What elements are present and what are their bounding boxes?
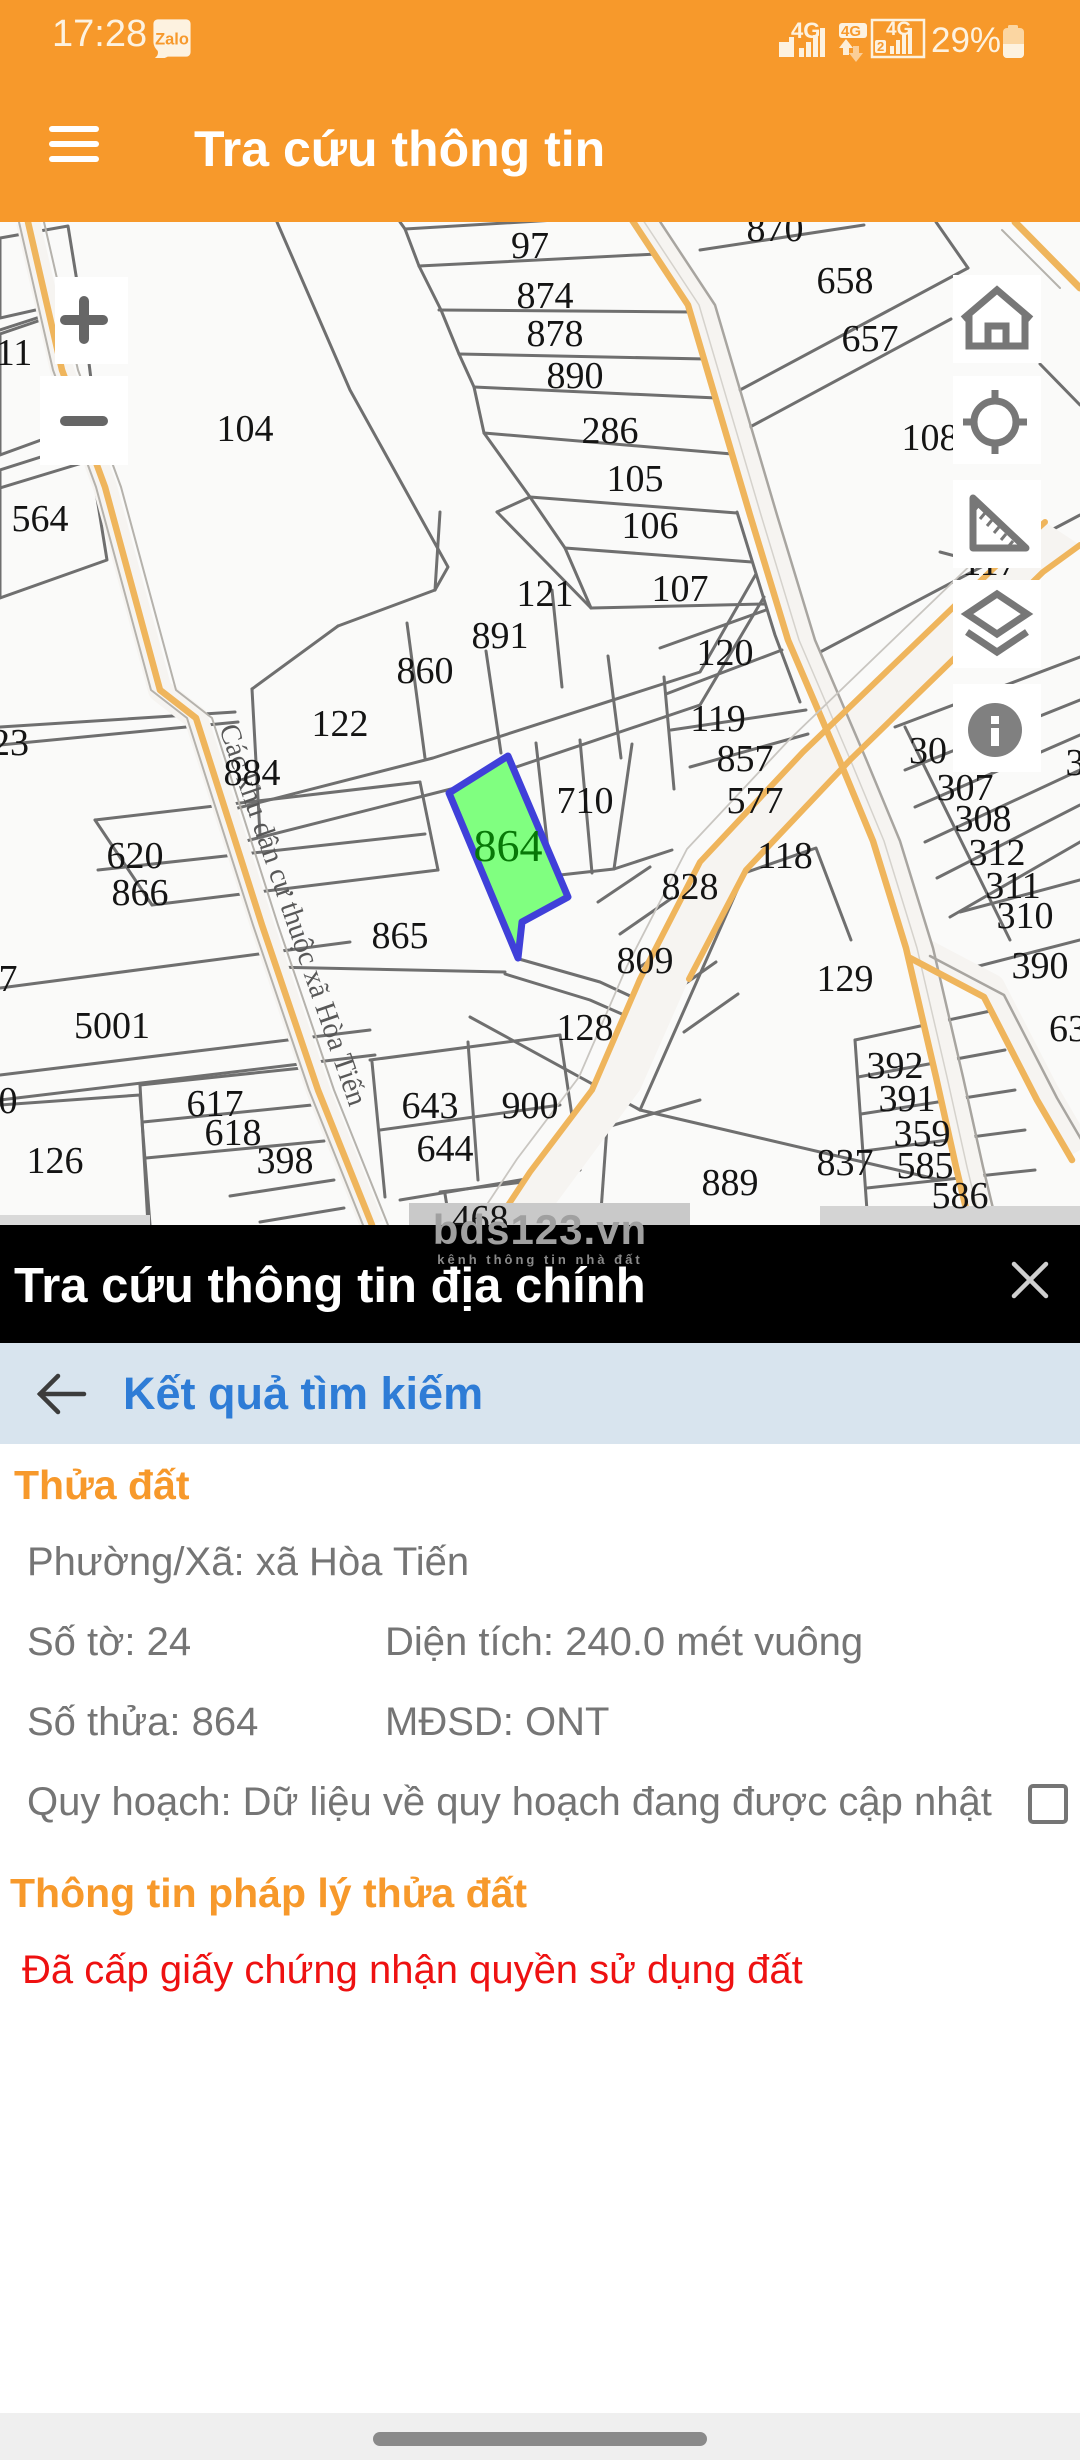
svg-text:828: 828 [662,866,719,908]
svg-text:878: 878 [527,313,584,355]
svg-text:63: 63 [1049,1008,1080,1050]
svg-text:577: 577 [727,780,784,822]
svg-text:104: 104 [217,408,274,450]
svg-text:398: 398 [257,1140,314,1182]
svg-text:864: 864 [474,820,543,871]
svg-text:3: 3 [1066,742,1080,784]
svg-text:118: 118 [757,835,813,877]
svg-text:122: 122 [312,703,369,745]
svg-text:620: 620 [107,835,164,877]
svg-text:286: 286 [582,410,639,452]
svg-text:105: 105 [607,458,664,500]
svg-text:889: 889 [702,1162,759,1204]
svg-text:900: 900 [502,1085,559,1127]
svg-text:644: 644 [417,1128,474,1170]
svg-text:29%: 29% [931,21,1001,60]
svg-text:618: 618 [205,1112,262,1154]
svg-text:97: 97 [511,225,549,267]
svg-text:107: 107 [652,568,709,610]
svg-text:710: 710 [557,780,614,822]
svg-text:128: 128 [557,1007,614,1049]
svg-text:121: 121 [517,573,574,615]
svg-text:866: 866 [112,872,169,914]
svg-text:120: 120 [697,632,754,674]
svg-text:23: 23 [0,722,29,764]
svg-text:860: 860 [397,650,454,692]
svg-text:4G: 4G [841,23,861,40]
svg-text:126: 126 [27,1140,84,1182]
svg-text:809: 809 [617,940,674,982]
svg-text:108: 108 [902,417,959,459]
svg-text:310: 310 [997,895,1054,937]
svg-text:0: 0 [0,1080,18,1122]
svg-text:4G: 4G [886,19,911,40]
svg-text:106: 106 [622,505,679,547]
svg-text:119: 119 [690,698,746,740]
svg-text:837: 837 [817,1142,874,1184]
svg-text:891: 891 [472,615,529,657]
svg-text:Zalo: Zalo [155,30,189,48]
svg-text:7: 7 [0,958,18,1000]
svg-text:11: 11 [0,332,32,374]
svg-text:870: 870 [747,222,804,250]
svg-text:857: 857 [717,738,774,780]
svg-text:865: 865 [372,915,429,957]
svg-text:884: 884 [224,752,281,794]
svg-text:657: 657 [842,318,899,360]
svg-text:5001: 5001 [74,1005,150,1047]
svg-text:30: 30 [909,730,947,772]
svg-text:129: 129 [817,958,874,1000]
svg-text:890: 890 [547,355,604,397]
svg-text:390: 390 [1012,945,1069,987]
svg-text:643: 643 [402,1085,459,1127]
svg-text:2: 2 [877,39,884,54]
svg-text:874: 874 [517,275,574,317]
svg-text:564: 564 [12,498,69,540]
svg-text:658: 658 [817,260,874,302]
